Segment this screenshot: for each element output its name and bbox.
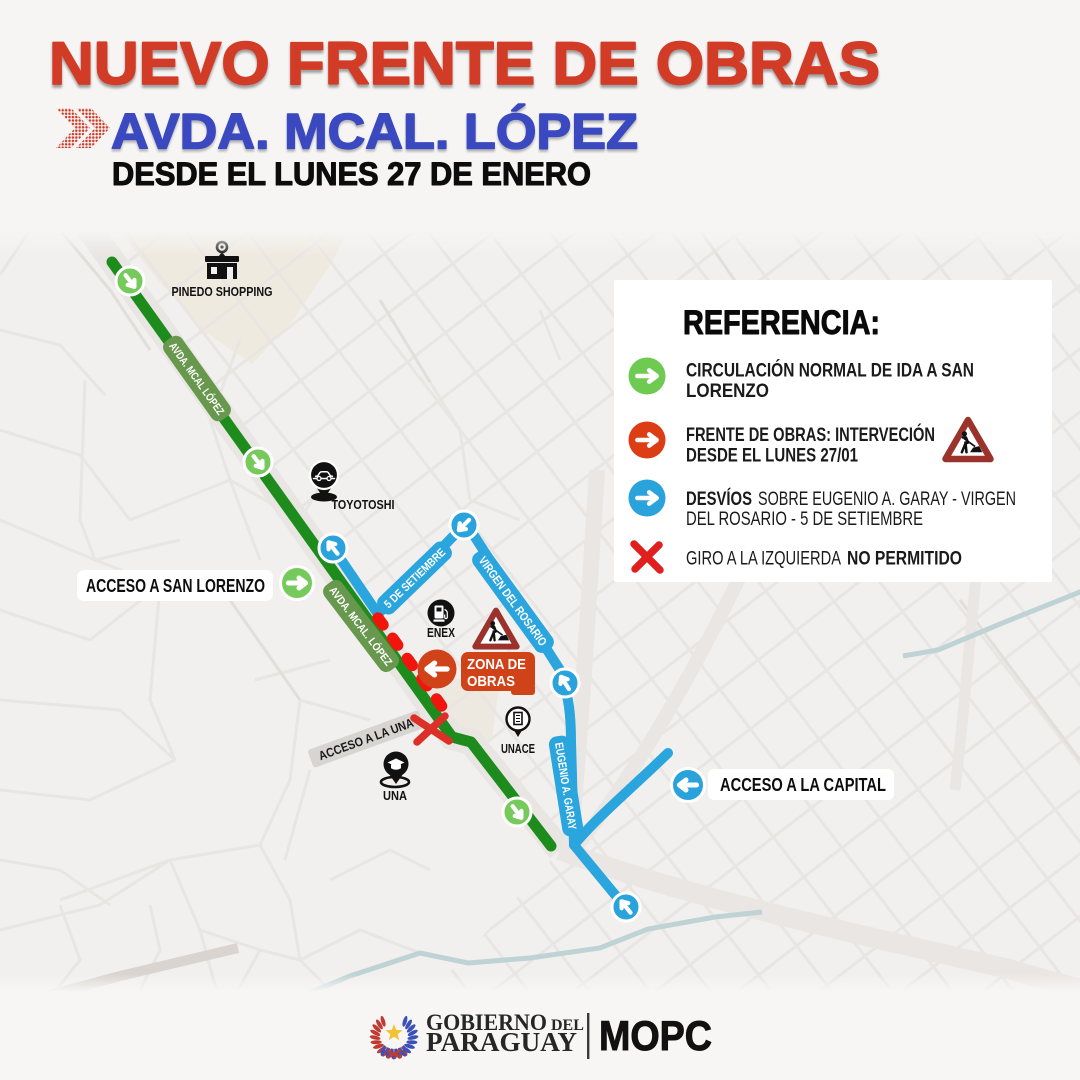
svg-text:ENEX: ENEX [427,625,455,640]
svg-text:SOBRE EUGENIO A. GARAY - VIRGE: SOBRE EUGENIO A. GARAY - VIRGEN [758,488,1016,510]
svg-text:OBRAS: OBRAS [467,673,515,690]
svg-text:ACCESO A LA CAPITAL: ACCESO A LA CAPITAL [720,775,886,795]
svg-text:MOPC: MOPC [599,1012,712,1059]
svg-text:ZONA DE: ZONA DE [467,656,526,673]
svg-text:AVDA. MCAL. LÓPEZ: AVDA. MCAL. LÓPEZ [111,103,638,159]
svg-text:ACCESO A SAN LORENZO: ACCESO A SAN LORENZO [86,576,265,596]
svg-text:DESDE EL LUNES 27 DE ENERO: DESDE EL LUNES 27 DE ENERO [112,156,591,192]
svg-text:TOYOTOSHI: TOYOTOSHI [332,498,395,512]
svg-text:DESVÍOS: DESVÍOS [686,487,752,510]
svg-text:GIRO A LA IZQUIERDA: GIRO A LA IZQUIERDA [686,548,841,570]
svg-text:UNACE: UNACE [501,742,535,756]
svg-text:DESDE EL LUNES 27/01: DESDE EL LUNES 27/01 [686,444,858,466]
svg-text:REFERENCIA:: REFERENCIA: [683,304,880,342]
svg-text:NO PERMITIDO: NO PERMITIDO [847,548,962,570]
svg-text:LORENZO: LORENZO [686,380,769,402]
svg-text:FRENTE DE OBRAS: INTERVECIÓN: FRENTE DE OBRAS: INTERVECIÓN [686,422,935,446]
svg-text:CIRCULACIÓN NORMAL DE IDA A SA: CIRCULACIÓN NORMAL DE IDA A SAN [686,358,974,382]
svg-text:PARAGUAY: PARAGUAY [426,1027,577,1057]
svg-text:DEL ROSARIO - 5 DE SETIEMBRE: DEL ROSARIO - 5 DE SETIEMBRE [686,508,923,530]
svg-text:PINEDO SHOPPING: PINEDO SHOPPING [172,285,273,299]
svg-text:NUEVO FRENTE DE OBRAS: NUEVO FRENTE DE OBRAS [49,30,880,97]
svg-text:UNA: UNA [383,788,408,803]
